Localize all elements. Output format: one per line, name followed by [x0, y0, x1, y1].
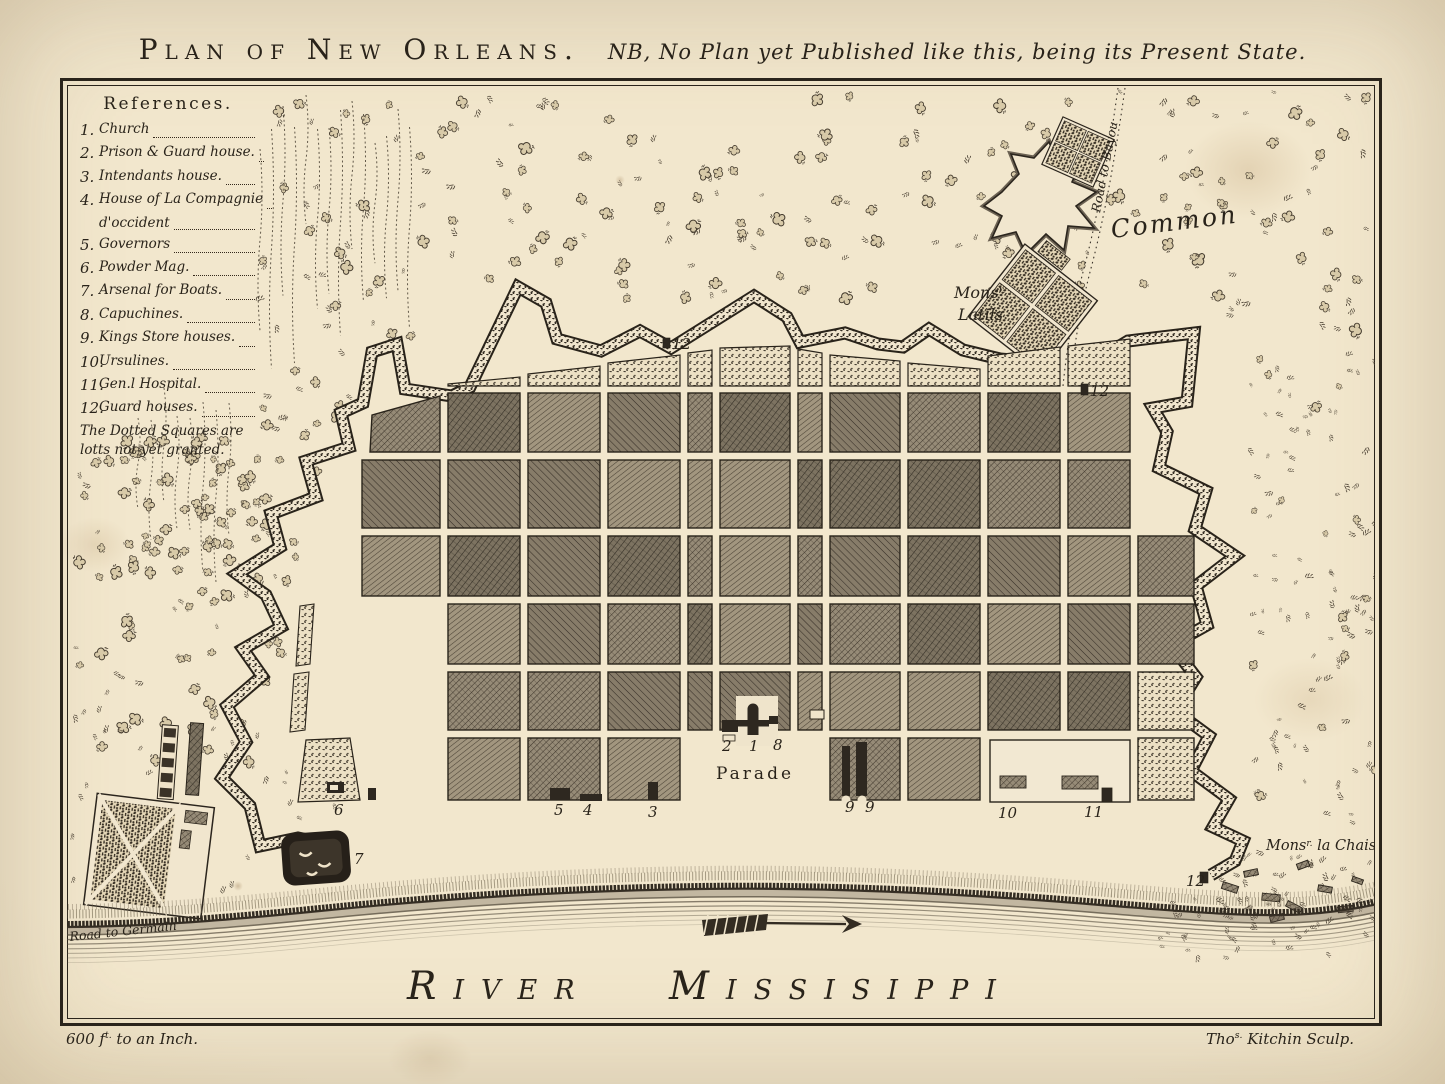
- ungranted-lot: [908, 363, 980, 386]
- references-box: References. 1.Church2.Prison & Guard hou…: [80, 94, 256, 461]
- ungranted-lot: [608, 355, 680, 386]
- map-marker-number: 1: [749, 737, 759, 755]
- ungranted-lot: [798, 349, 822, 386]
- reference-item: 5.Governors: [80, 234, 256, 257]
- city-block: [528, 672, 600, 730]
- city-block: [448, 393, 520, 452]
- city-block: [830, 460, 900, 528]
- store-house: [856, 742, 867, 796]
- map-marker-number: 12: [1090, 382, 1109, 400]
- house: [1351, 876, 1363, 884]
- intendants-building: [648, 782, 658, 800]
- antique-map-page: Plan of New Orleans.NB, No Plan yet Publ…: [0, 0, 1445, 1084]
- reference-item: 8.Capuchines.: [80, 304, 256, 327]
- map-marker-number: 11: [1084, 803, 1103, 821]
- governors-building: [550, 788, 570, 800]
- city-block: [1138, 536, 1194, 596]
- reference-item: 10.Ursulines.: [80, 351, 256, 374]
- river-flow-arrow: [702, 914, 862, 936]
- city-block: [448, 536, 520, 596]
- city-block: [908, 672, 980, 730]
- ungranted-lot: [528, 366, 600, 386]
- arsenal-building: [769, 716, 778, 724]
- city-block: [908, 738, 980, 800]
- city-grid: [290, 338, 1208, 883]
- ungranted-lot: [830, 355, 900, 386]
- x-garden: [84, 793, 215, 919]
- city-block: [830, 536, 900, 596]
- map-marker-number: 12: [1186, 872, 1205, 890]
- city-block: [448, 460, 520, 528]
- ungranted-lot: [290, 672, 309, 732]
- city-block: [688, 460, 712, 528]
- reference-item: 7.Arsenal for Boats.: [80, 280, 256, 303]
- city-block: [830, 604, 900, 664]
- city-block: [528, 604, 600, 664]
- city-block: [988, 672, 1060, 730]
- hospital-building: [1062, 776, 1098, 789]
- city-block: [448, 672, 520, 730]
- parade-label: Parade: [716, 764, 794, 784]
- reference-item: 3.Intendants house.: [80, 166, 256, 189]
- city-block: [798, 536, 822, 596]
- city-block: [1068, 460, 1130, 528]
- map-marker-number: 9: [845, 798, 855, 816]
- engraver-credit: Thos. Kitchin Sculp.: [1206, 1030, 1354, 1048]
- map-marker-number: 9: [865, 798, 875, 816]
- city-block: [908, 536, 980, 596]
- city-block: [688, 536, 712, 596]
- ungranted-lot: [720, 346, 790, 386]
- common-label: Common: [1109, 200, 1239, 244]
- mons-latils-label-line2: Latils: [957, 305, 1003, 324]
- city-block: [1068, 536, 1130, 596]
- references-heading: References.: [80, 94, 256, 114]
- city-block: [988, 604, 1060, 664]
- city-block: [370, 396, 440, 452]
- city-block: [1138, 738, 1194, 800]
- map-marker-number: 6: [334, 801, 344, 819]
- city-block: [830, 672, 900, 730]
- reference-item: 11.Gen.l Hospital.: [80, 374, 256, 397]
- city-block: [608, 672, 680, 730]
- guard-house: [663, 338, 670, 348]
- city-block: [608, 738, 680, 800]
- map-marker-number: 5: [554, 801, 564, 819]
- city-block: [608, 604, 680, 664]
- city-block: [908, 604, 980, 664]
- city-block: [1138, 604, 1194, 664]
- references-note: The Dotted Squares are lotts not yet gra…: [80, 422, 256, 461]
- map-marker-number: 3: [648, 803, 658, 821]
- city-block: [720, 393, 790, 452]
- city-block: [988, 460, 1060, 528]
- city-block: [1068, 393, 1130, 452]
- map-marker-number: 12: [672, 335, 691, 353]
- map-marker-number: 10: [998, 804, 1018, 822]
- city-block: [988, 536, 1060, 596]
- reference-item: 12.Guard houses.: [80, 397, 256, 420]
- city-block: [608, 536, 680, 596]
- city-block: [448, 738, 520, 800]
- map-scene: CommonRoad to BayouRoad to GermainParade…: [60, 88, 1386, 963]
- ungranted-lot: [296, 604, 314, 666]
- city-block: [798, 460, 822, 528]
- boat-arsenal-fort: [280, 830, 351, 887]
- map-marker-number: 7: [354, 850, 364, 868]
- city-block: [688, 672, 712, 730]
- reference-item: 2.Prison & Guard house.: [80, 142, 256, 165]
- guard-house: [1081, 384, 1088, 395]
- city-block: [688, 604, 712, 664]
- city-block: [448, 604, 520, 664]
- map-marker-number: 4: [582, 801, 593, 819]
- reference-item-continued: d'occident: [80, 213, 256, 234]
- ungranted-lot: [448, 377, 520, 386]
- city-block: [798, 604, 822, 664]
- city-block: [362, 536, 440, 596]
- reference-item: 9.Kings Store houses.: [80, 327, 256, 350]
- city-block: [608, 460, 680, 528]
- city-block: [362, 460, 440, 528]
- city-block: [528, 536, 600, 596]
- city-block: [1068, 672, 1130, 730]
- city-block: [720, 536, 790, 596]
- garden-strips: [157, 721, 203, 802]
- city-block: [1068, 604, 1130, 664]
- city-block: [830, 393, 900, 452]
- city-block: [908, 460, 980, 528]
- house: [1221, 882, 1238, 894]
- reference-item: 1.Church: [80, 119, 256, 142]
- city-block: [720, 604, 790, 664]
- map-marker-number: 2: [721, 737, 732, 755]
- ungranted-lot: [1068, 339, 1130, 386]
- house: [1296, 860, 1309, 870]
- reference-item: 6.Powder Mag.: [80, 257, 256, 280]
- ursulines-building: [1000, 776, 1026, 788]
- ungranted-lot: [688, 350, 712, 386]
- mons-latils-label: Monsr.: [953, 283, 1005, 302]
- city-block: [688, 393, 712, 452]
- scale-label: 600 ft. to an Inch.: [66, 1030, 198, 1048]
- river-label: River Missisippi: [320, 964, 1100, 1009]
- city-block: [798, 672, 822, 730]
- reference-item: 4.House of La Compagnie: [80, 189, 256, 212]
- map-marker-number: 8: [773, 736, 783, 754]
- mons-la-chaise-label: Monsr. la Chaise: [1265, 838, 1385, 854]
- city-block: [988, 393, 1060, 452]
- city-block: [528, 393, 600, 452]
- city-block: [608, 393, 680, 452]
- city-block: [798, 393, 822, 452]
- prison-building: [722, 720, 738, 732]
- city-block: [528, 460, 600, 528]
- store-house: [842, 746, 850, 796]
- city-block: [908, 393, 980, 452]
- city-block: [1138, 672, 1194, 730]
- city-block: [720, 460, 790, 528]
